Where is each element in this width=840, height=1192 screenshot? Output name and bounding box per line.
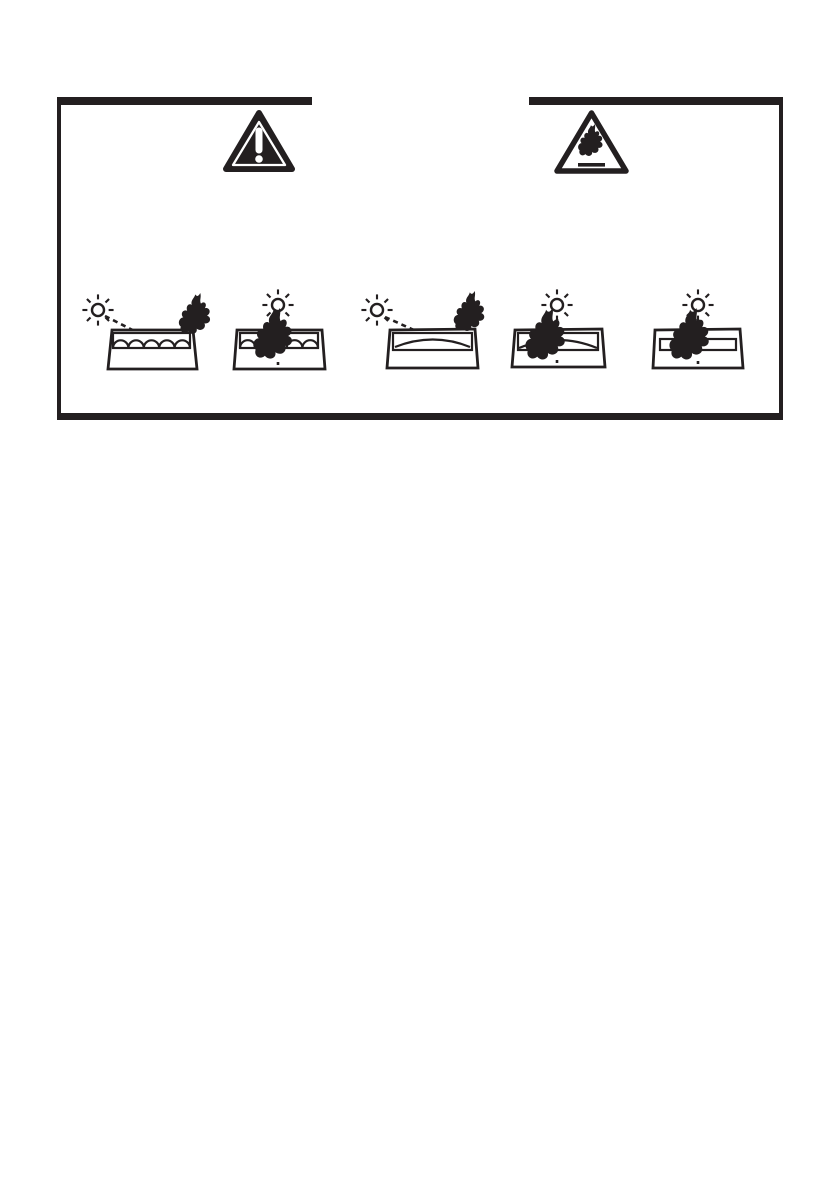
warning-triangle-flammable-icon	[552, 108, 631, 176]
manual-page	[0, 0, 840, 1192]
pictogram-sun-slanted-tray-fire-beside-icon	[72, 288, 222, 378]
top-border-left-segment	[57, 97, 312, 105]
pictogram-sun-overhead-tray-fire-inside-icon	[228, 288, 328, 378]
pictogram-sun-overhead-curved-glass-fire-inside-icon	[508, 288, 608, 378]
pictogram-sun-slanted-curved-glass-fire-beside-icon	[358, 288, 498, 378]
warning-triangle-exclamation-icon	[223, 109, 295, 174]
pictogram-sun-overhead-flat-glass-fire-inside-icon	[650, 288, 750, 378]
warning-box	[57, 97, 783, 420]
top-border-right-segment	[529, 97, 783, 105]
